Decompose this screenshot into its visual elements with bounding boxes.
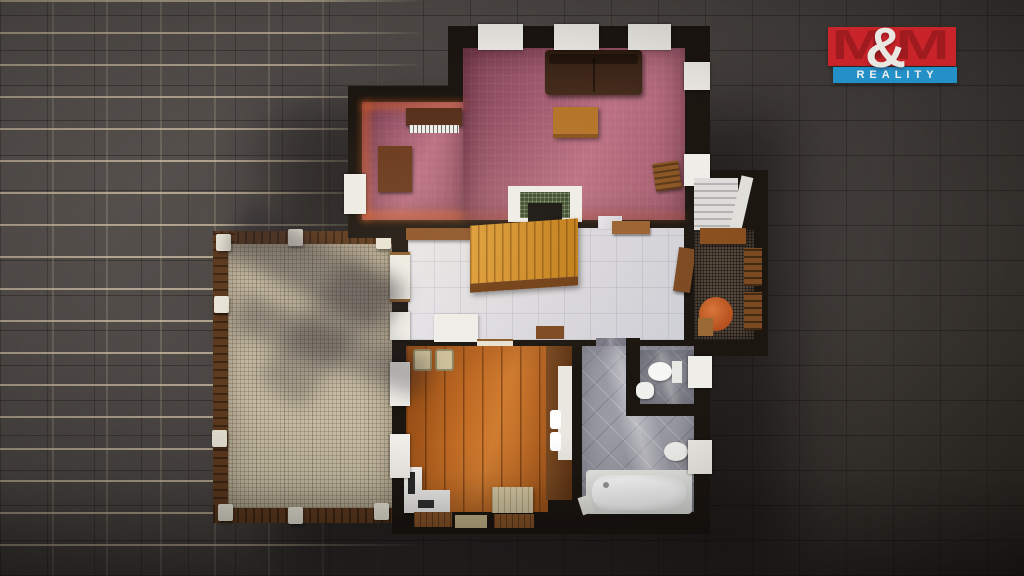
logo-ampersand: & [865,20,906,77]
balcony-crate [698,318,713,336]
toilet-bowl [648,362,672,381]
bench [492,487,533,513]
terrace-post [212,430,227,447]
terrace-post [288,507,303,524]
sink-basin [550,432,561,451]
balcony-chair [744,248,762,286]
radiator-shelf [612,221,650,234]
bathtub-basin [592,475,686,510]
mm-reality-logo: M M & REALITY [828,24,968,86]
desk [378,146,412,192]
piano-keys [409,125,459,133]
scene-canvas: M M & REALITY [0,0,1024,576]
sofa-backrest [549,54,638,64]
entry-step [494,514,534,528]
pouf [435,349,454,371]
terrace-post [218,504,233,521]
wc-sink [636,382,654,399]
window [478,24,523,50]
window [688,440,712,474]
sofa [545,50,642,95]
logo-red-block: M M & [828,27,956,66]
balcony-chair [744,292,762,330]
toilet-tank [672,361,682,383]
window [628,24,671,50]
window [390,312,410,340]
bidet [664,442,688,461]
sink-basin [550,410,561,429]
white-rug [434,314,478,342]
terrace-post [374,503,389,520]
window [688,356,712,388]
window [344,174,366,214]
window [554,24,599,50]
window [390,434,410,478]
hall-wood-shelf [406,228,470,240]
keyboard [418,500,434,508]
bathtub-drain [603,482,609,488]
entry-step [414,512,452,527]
window [684,62,710,90]
terrace-post [214,296,229,313]
table [553,107,598,138]
entry-step [455,515,487,528]
wc-wall-vertical [626,338,640,412]
wall-light-glow [362,212,463,220]
piano-body [406,108,462,126]
chair [652,160,682,191]
wc-wall-horizontal [626,402,710,416]
staircase [470,218,578,293]
doormat [536,326,564,339]
balcony-table [700,228,746,244]
